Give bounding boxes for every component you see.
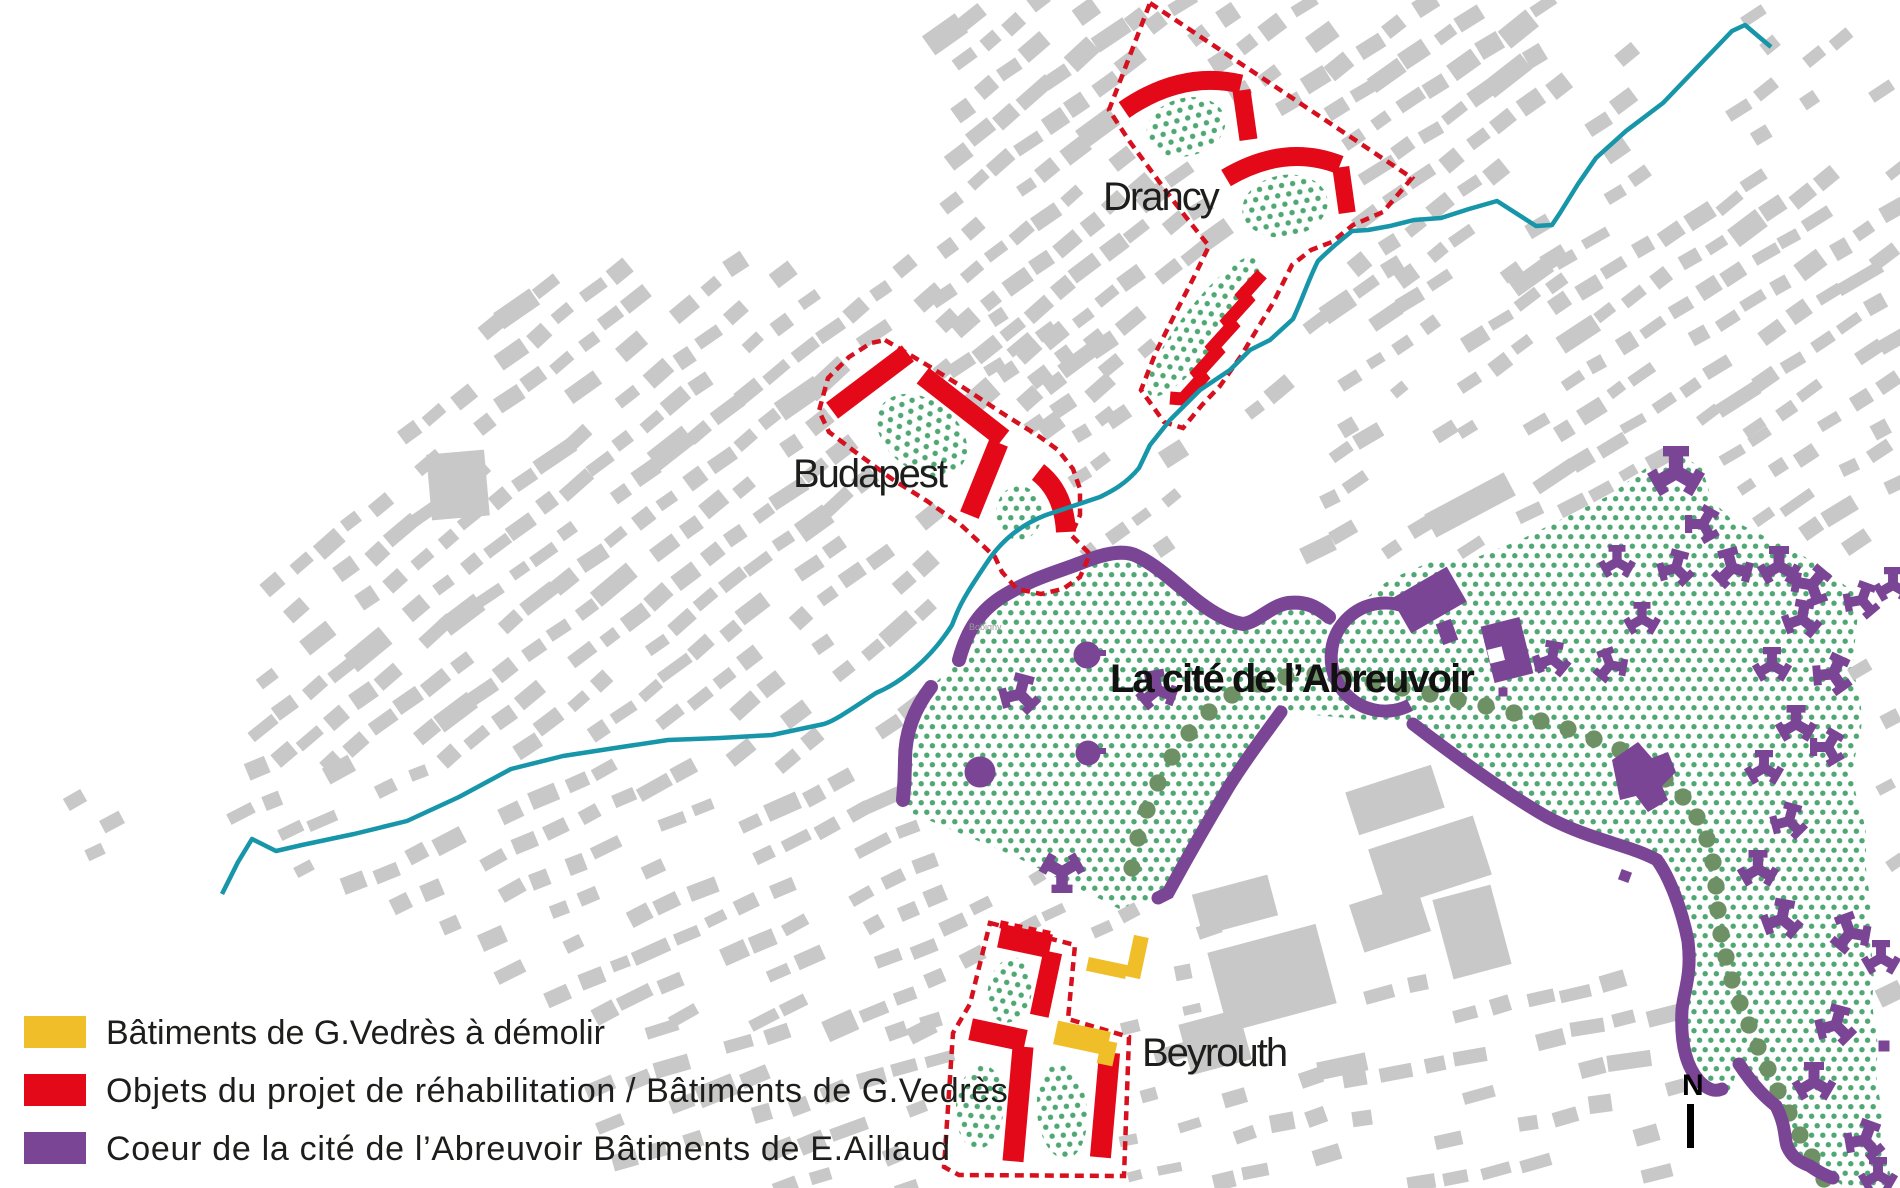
svg-text:Beyrouth: Beyrouth bbox=[1142, 1031, 1286, 1075]
svg-text:Coeur de la cité de l’Abreuvoi: Coeur de la cité de l’Abreuvoir Bâtiment… bbox=[106, 1130, 951, 1168]
svg-text:Bâtiments de G.Vedrès à démoli: Bâtiments de G.Vedrès à démolir bbox=[106, 1014, 605, 1052]
svg-text:Bobigny: Bobigny bbox=[969, 622, 1002, 632]
svg-text:Drancy: Drancy bbox=[1103, 175, 1220, 219]
svg-text:Budapest: Budapest bbox=[793, 452, 948, 496]
svg-text:N: N bbox=[1682, 1069, 1704, 1102]
svg-text:Objets du projet de réhabilita: Objets du projet de réhabilitation / Bât… bbox=[106, 1072, 1008, 1110]
svg-text:La cité de l’Abreuvoir: La cité de l’Abreuvoir bbox=[1110, 657, 1474, 701]
